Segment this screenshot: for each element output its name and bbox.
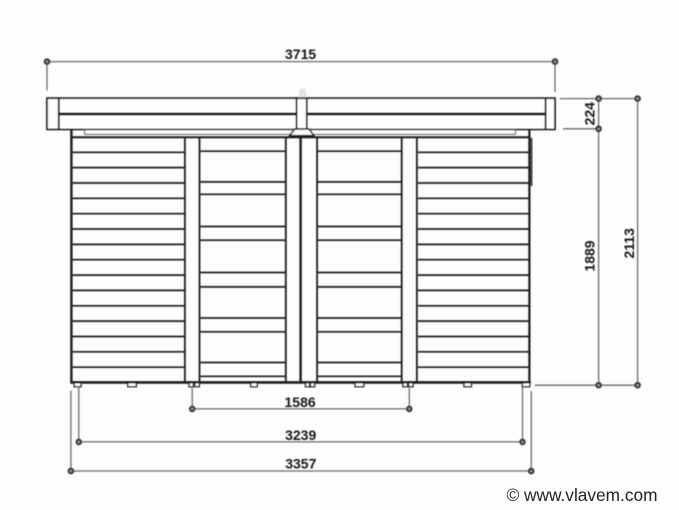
svg-text:© www.vlavem.com: © www.vlavem.com [506,485,657,505]
svg-text:2113: 2113 [621,228,637,259]
svg-text:1889: 1889 [582,240,598,271]
svg-text:3239: 3239 [285,427,316,443]
svg-text:3357: 3357 [285,455,316,471]
svg-text:1586: 1586 [285,394,316,410]
svg-text:224: 224 [582,102,598,126]
svg-text:3715: 3715 [285,46,316,62]
